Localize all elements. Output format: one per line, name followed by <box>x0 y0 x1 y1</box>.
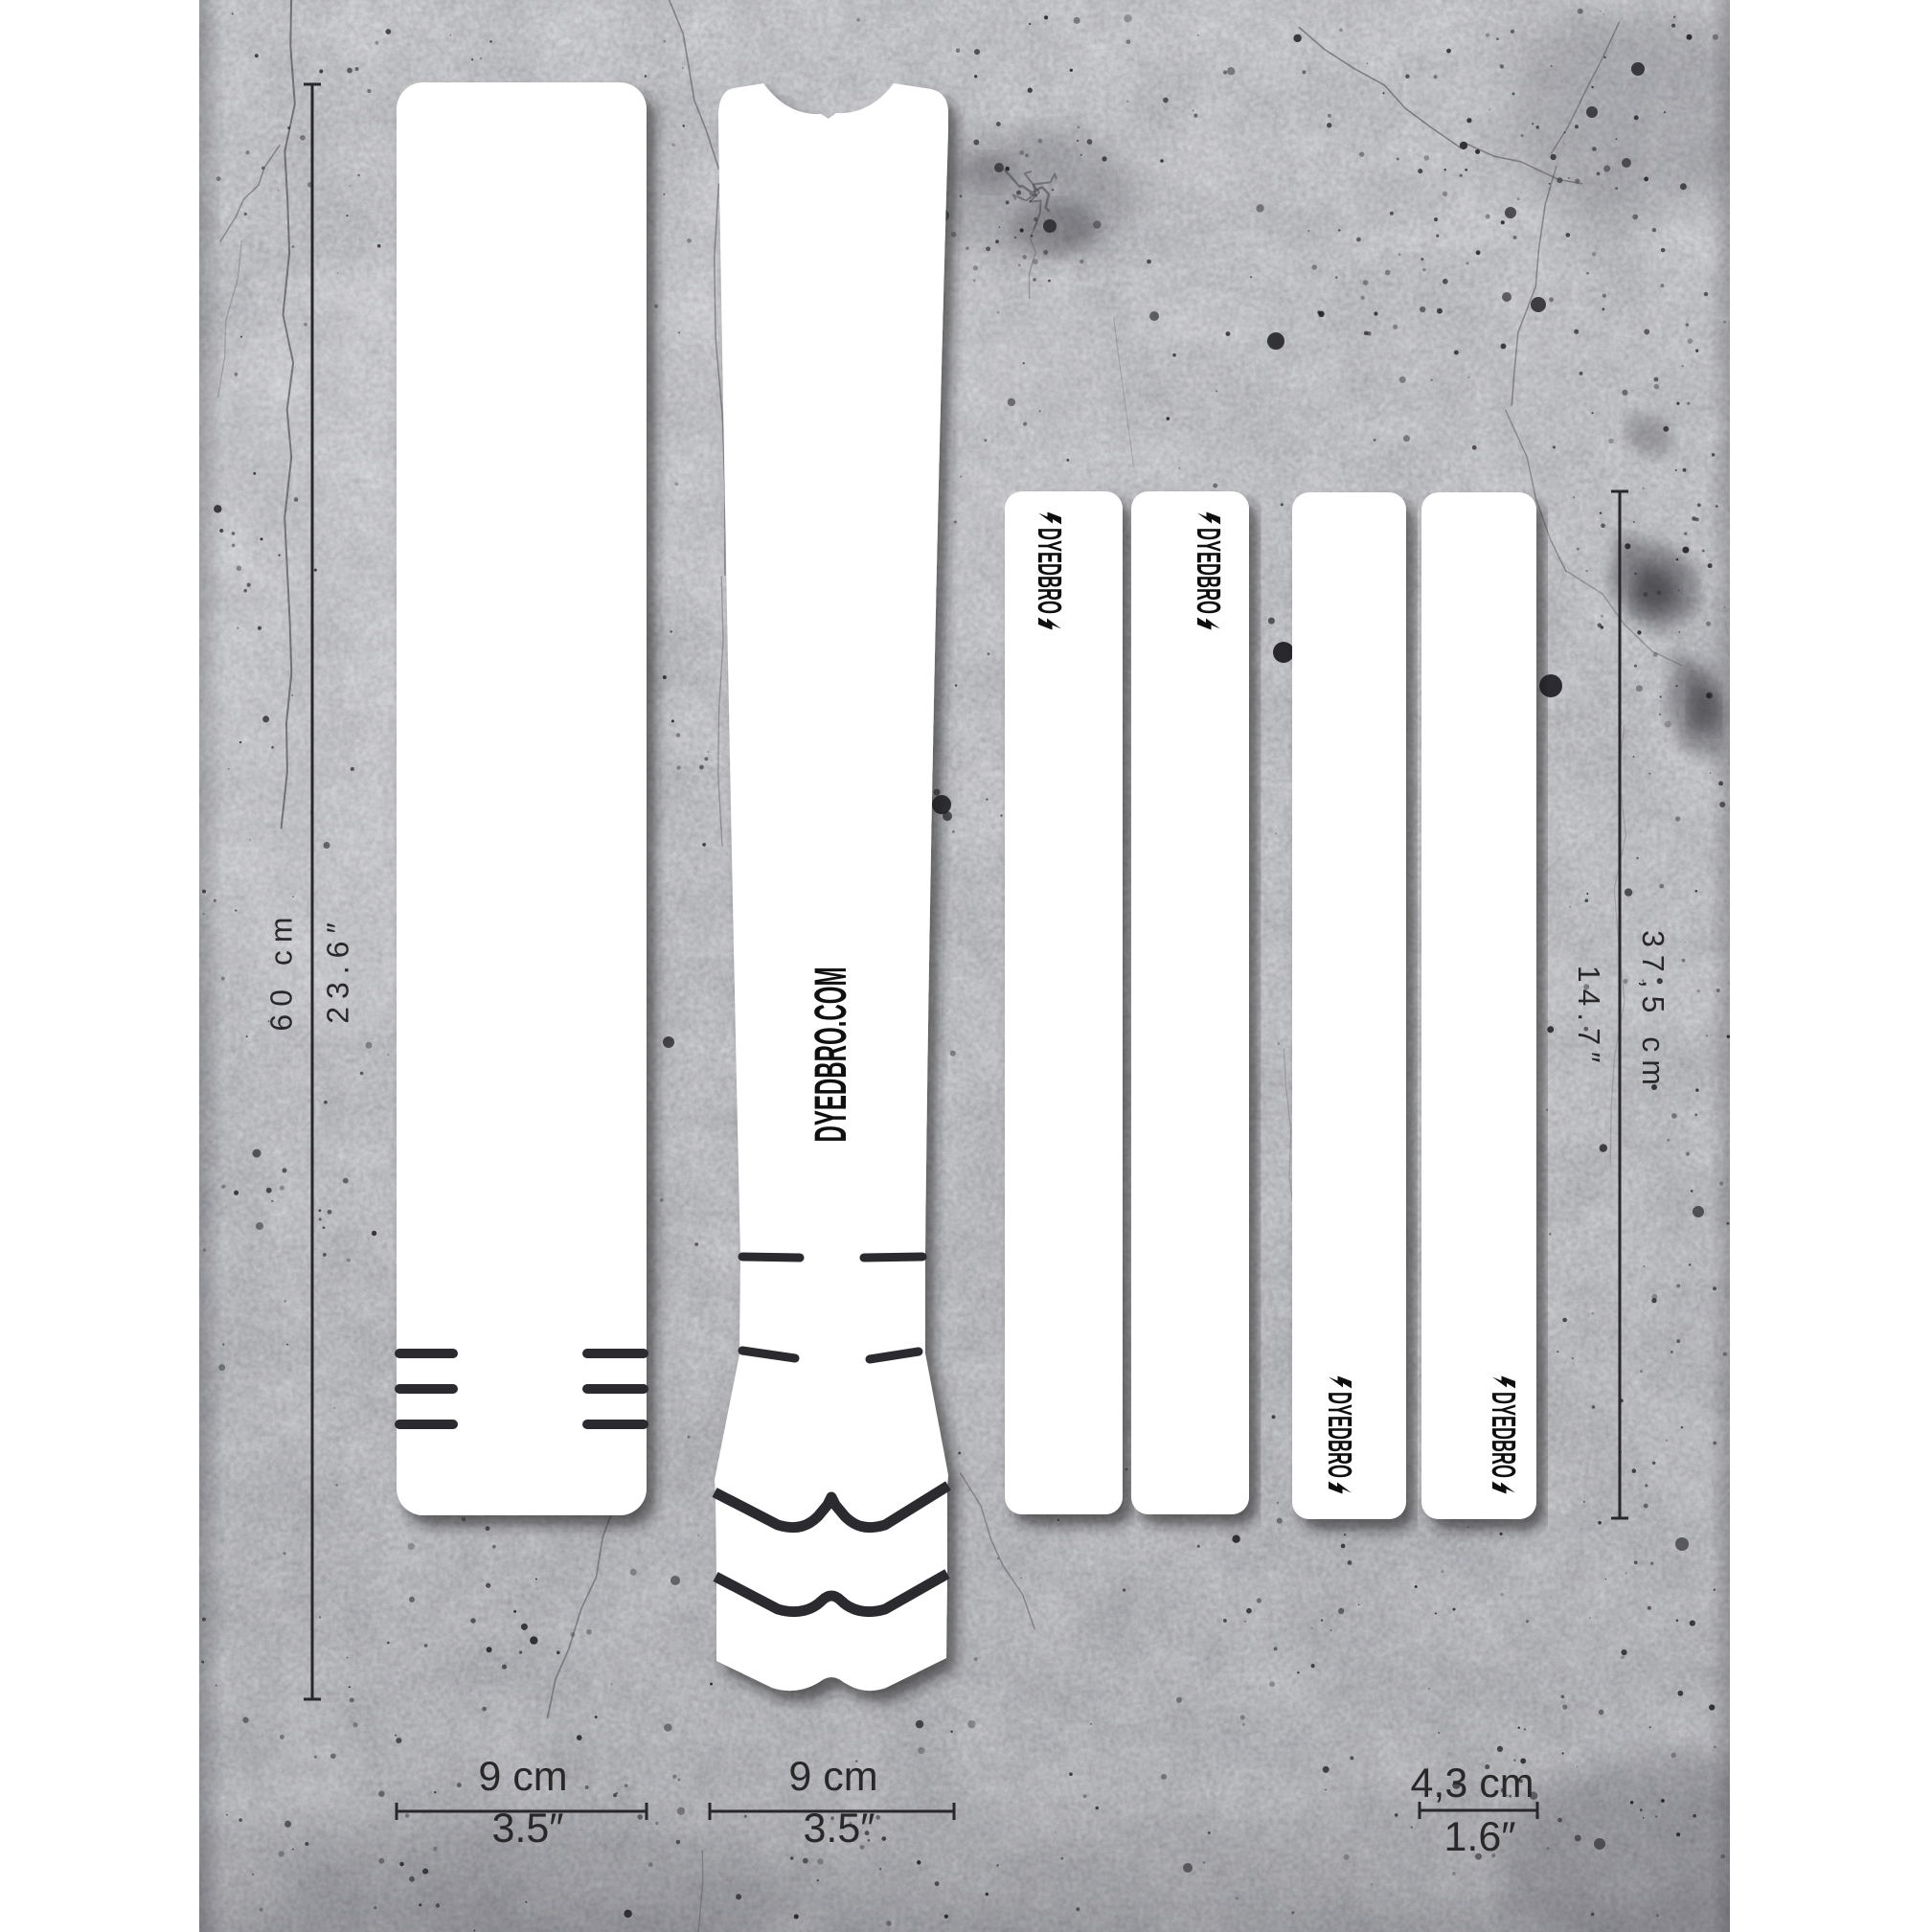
svg-text:DYEDBRO.COM: DYEDBRO.COM <box>805 967 855 1143</box>
svg-text:1.6″: 1.6″ <box>1444 1814 1516 1860</box>
svg-text:9 cm: 9 cm <box>478 1754 567 1800</box>
svg-text:3.5″: 3.5″ <box>492 1806 564 1852</box>
svg-text:37,5 cm: 37,5 cm <box>1636 930 1671 1093</box>
svg-text:3.5″: 3.5″ <box>804 1806 875 1852</box>
svg-text:4,3 cm: 4,3 cm <box>1410 1761 1534 1807</box>
svg-text:9 cm: 9 cm <box>788 1754 877 1800</box>
svg-text:23.6″: 23.6″ <box>321 915 355 1024</box>
svg-text:60 cm: 60 cm <box>264 909 299 1031</box>
svg-text:14.7″: 14.7″ <box>1572 966 1606 1070</box>
